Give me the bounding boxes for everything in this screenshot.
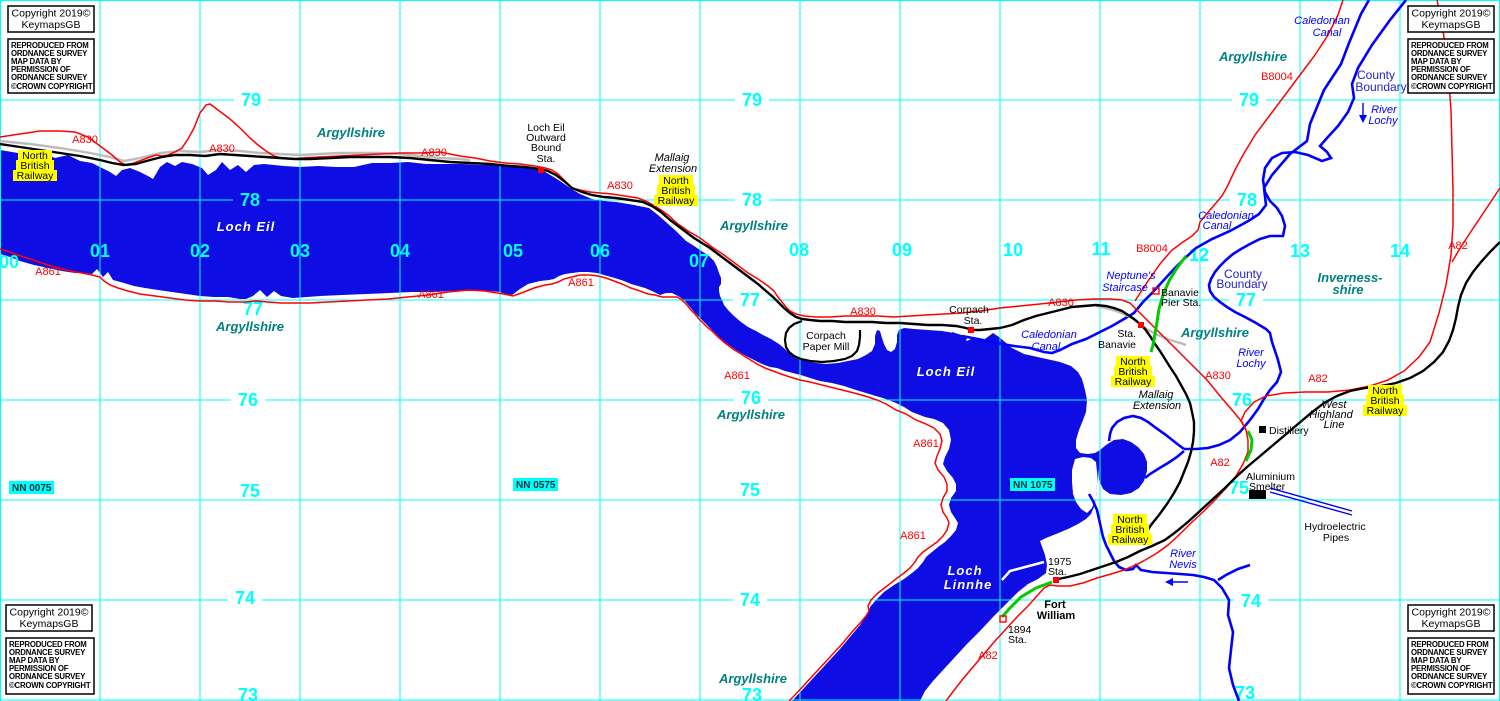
svg-text:Lochy: Lochy [1236, 358, 1267, 370]
svg-text:A830: A830 [421, 147, 447, 159]
svg-text:A82: A82 [1448, 240, 1468, 252]
svg-text:77: 77 [1236, 290, 1256, 310]
svg-text:Sta.: Sta. [1008, 634, 1027, 646]
svg-text:shire: shire [1332, 282, 1363, 297]
svg-text:NN 1075: NN 1075 [1013, 480, 1053, 491]
svg-text:A861: A861 [913, 438, 939, 450]
svg-text:78: 78 [240, 190, 260, 210]
svg-text:79: 79 [742, 90, 762, 110]
svg-text:07: 07 [689, 251, 709, 271]
svg-text:A861: A861 [900, 530, 926, 542]
svg-text:75: 75 [240, 481, 260, 501]
svg-text:74: 74 [235, 588, 255, 608]
svg-text:76: 76 [238, 390, 258, 410]
svg-text:74: 74 [1241, 591, 1261, 611]
svg-text:A830: A830 [607, 180, 633, 192]
svg-text:B8004: B8004 [1261, 71, 1293, 83]
svg-text:79: 79 [241, 90, 261, 110]
svg-text:12: 12 [1189, 245, 1209, 265]
svg-text:Railway: Railway [17, 170, 55, 182]
svg-text:09: 09 [892, 240, 912, 260]
svg-text:10: 10 [1003, 240, 1023, 260]
svg-text:Argyllshire: Argyllshire [1218, 49, 1287, 64]
svg-text:A82: A82 [978, 650, 998, 662]
svg-text:A861: A861 [418, 289, 444, 301]
svg-text:77: 77 [740, 290, 760, 310]
svg-text:75: 75 [740, 480, 760, 500]
svg-text:ORDNANCE SURVEY: ORDNANCE SURVEY [9, 672, 86, 681]
svg-text:05: 05 [503, 241, 523, 261]
svg-text:Pier Sta.: Pier Sta. [1161, 297, 1201, 309]
svg-text:Loch Eil: Loch Eil [917, 364, 976, 379]
svg-text:03: 03 [290, 241, 310, 261]
svg-text:B8004: B8004 [1136, 243, 1168, 255]
svg-text:Extension: Extension [1133, 400, 1181, 412]
svg-text:A830: A830 [1048, 297, 1074, 309]
svg-text:11: 11 [1091, 239, 1110, 259]
svg-text:©CROWN COPYRIGHT: ©CROWN COPYRIGHT [9, 681, 91, 690]
svg-text:Nevis: Nevis [1169, 559, 1197, 571]
svg-text:Canal: Canal [1313, 27, 1342, 39]
svg-text:NN 0075: NN 0075 [12, 483, 52, 494]
svg-text:A830: A830 [850, 306, 876, 318]
svg-text:Railway: Railway [1367, 405, 1405, 417]
svg-text:Line: Line [1324, 419, 1345, 431]
svg-text:A82: A82 [1308, 373, 1328, 385]
svg-text:ORDNANCE SURVEY: ORDNANCE SURVEY [1411, 672, 1488, 681]
svg-text:Caledonian: Caledonian [1294, 15, 1350, 27]
svg-text:Copyright 2019©: Copyright 2019© [10, 607, 89, 619]
svg-text:A82: A82 [1210, 457, 1230, 469]
svg-text:A830: A830 [1205, 370, 1231, 382]
svg-text:Staircase: Staircase [1102, 282, 1148, 294]
svg-text:Railway: Railway [1115, 376, 1153, 388]
svg-text:©CROWN COPYRIGHT: ©CROWN COPYRIGHT [1411, 82, 1493, 91]
svg-text:A861: A861 [724, 370, 750, 382]
svg-text:Loch: Loch [947, 563, 982, 578]
svg-text:Sta.: Sta. [537, 153, 556, 165]
svg-text:73: 73 [238, 685, 258, 701]
svg-text:ORDNANCE SURVEY: ORDNANCE SURVEY [11, 73, 88, 82]
svg-text:Boundary: Boundary [1355, 80, 1406, 94]
svg-text:06: 06 [590, 241, 610, 261]
svg-text:Copyright 2019©: Copyright 2019© [1412, 607, 1491, 619]
svg-text:79: 79 [1239, 90, 1259, 110]
svg-text:Banavie: Banavie [1098, 339, 1136, 351]
svg-text:KeymapsGB: KeymapsGB [22, 19, 81, 31]
svg-text:Smelter: Smelter [1249, 481, 1286, 493]
svg-text:ORDNANCE SURVEY: ORDNANCE SURVEY [1411, 73, 1488, 82]
svg-text:William: William [1037, 610, 1076, 622]
svg-text:74: 74 [740, 590, 760, 610]
svg-text:KeymapsGB: KeymapsGB [20, 618, 79, 630]
svg-text:Canal: Canal [1032, 341, 1061, 353]
svg-text:Caledonian: Caledonian [1021, 329, 1077, 341]
svg-text:Argyllshire: Argyllshire [716, 407, 785, 422]
svg-text:Lochy: Lochy [1368, 115, 1399, 127]
svg-text:KeymapsGB: KeymapsGB [1422, 19, 1481, 31]
svg-text:Canal: Canal [1203, 220, 1232, 232]
svg-text:NN 0575: NN 0575 [516, 480, 556, 491]
svg-text:Sta.: Sta. [1048, 566, 1067, 578]
svg-text:13: 13 [1290, 241, 1310, 261]
svg-text:Railway: Railway [658, 195, 696, 207]
svg-text:Neptune's: Neptune's [1106, 270, 1156, 282]
svg-text:Pipes: Pipes [1323, 532, 1349, 544]
svg-text:A830: A830 [72, 134, 98, 146]
svg-text:04: 04 [390, 241, 410, 261]
svg-text:78: 78 [1237, 190, 1257, 210]
svg-text:Argyllshire: Argyllshire [718, 671, 787, 686]
svg-text:Extension: Extension [649, 163, 697, 175]
svg-text:Argyllshire: Argyllshire [316, 125, 385, 140]
svg-text:76: 76 [741, 388, 761, 408]
svg-text:Boundary: Boundary [1216, 277, 1267, 291]
svg-text:Sta.: Sta. [964, 315, 983, 327]
svg-text:A830: A830 [209, 143, 235, 155]
svg-text:Railway: Railway [1112, 534, 1150, 546]
svg-text:©CROWN COPYRIGHT: ©CROWN COPYRIGHT [1411, 681, 1493, 690]
svg-text:©CROWN COPYRIGHT: ©CROWN COPYRIGHT [11, 82, 93, 91]
svg-text:Linnhe: Linnhe [944, 577, 993, 592]
svg-text:Paper Mill: Paper Mill [803, 341, 850, 353]
svg-text:A861: A861 [568, 277, 594, 289]
svg-text:A861: A861 [35, 266, 61, 278]
svg-text:08: 08 [789, 240, 809, 260]
svg-text:78: 78 [742, 190, 762, 210]
svg-text:14: 14 [1390, 241, 1410, 261]
svg-text:Argyllshire: Argyllshire [719, 218, 788, 233]
svg-text:Loch Eil: Loch Eil [217, 219, 276, 234]
svg-text:Distillery: Distillery [1269, 425, 1309, 437]
svg-text:Argyllshire: Argyllshire [1180, 325, 1249, 340]
svg-text:Argyllshire: Argyllshire [215, 319, 284, 334]
svg-text:KeymapsGB: KeymapsGB [1422, 618, 1481, 630]
svg-text:02: 02 [190, 241, 210, 261]
svg-text:Copyright 2019©: Copyright 2019© [12, 8, 91, 20]
svg-text:73: 73 [742, 685, 762, 701]
svg-text:Copyright 2019©: Copyright 2019© [1412, 8, 1491, 20]
svg-text:01: 01 [90, 241, 110, 261]
